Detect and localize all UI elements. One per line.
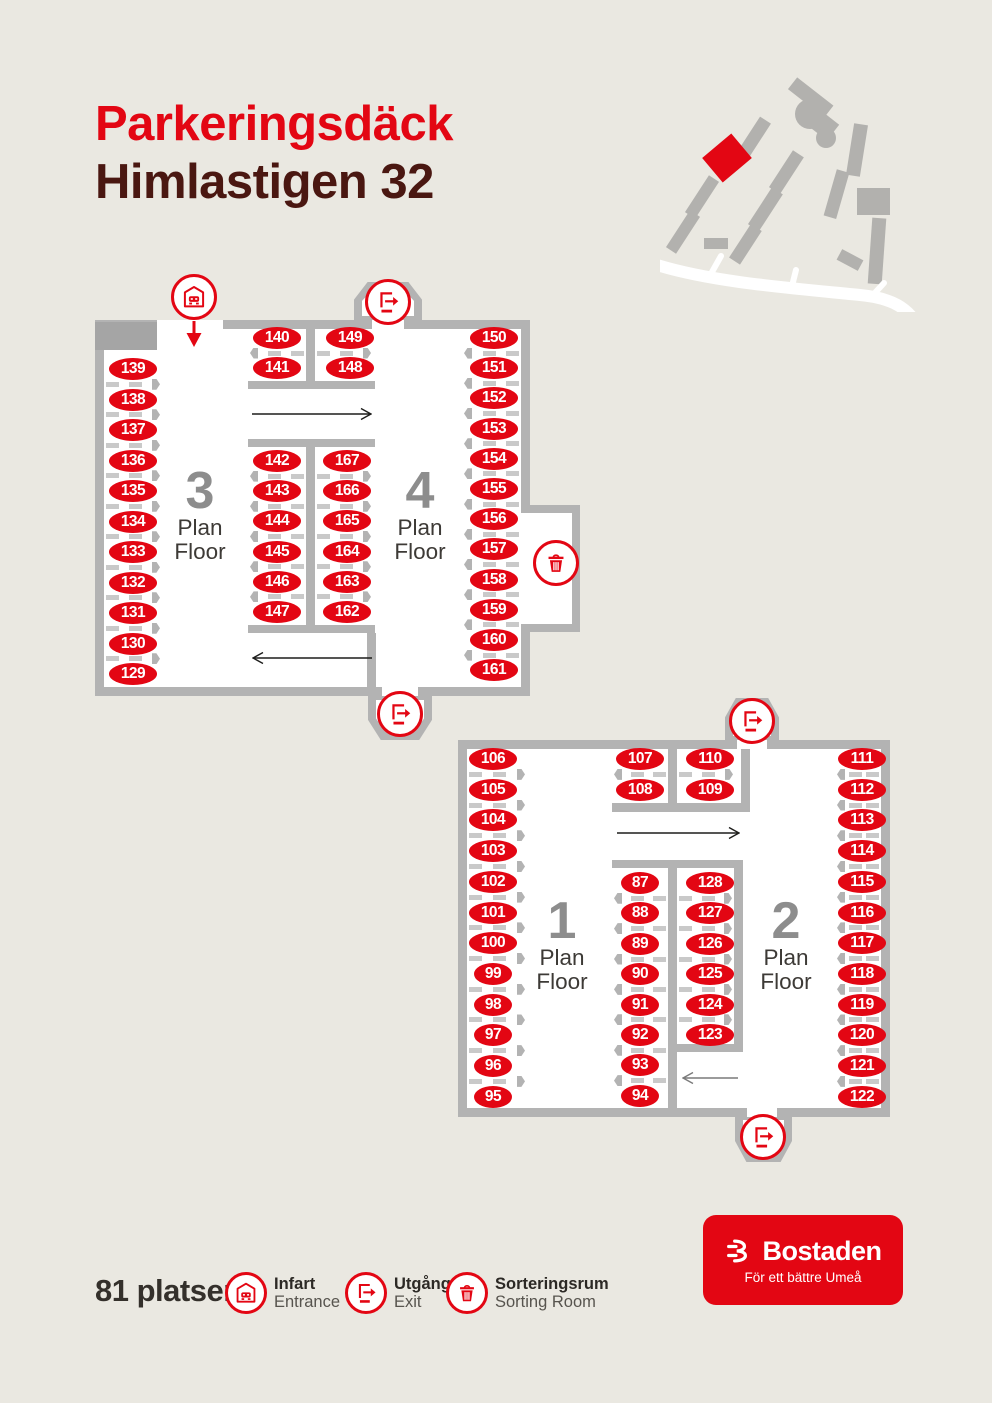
divider-dash [702,772,715,777]
divider-dash [866,1079,879,1084]
space-divider [837,861,879,872]
space-divider [464,650,519,661]
divider-knob [517,830,525,841]
parking-spot-124: 124 [686,994,734,1016]
floor-number: 2 [738,896,834,946]
divider-dash [849,772,862,777]
divider-knob [837,953,845,964]
divider-dash [653,896,666,901]
divider-dash [849,895,862,900]
parking-spot-145: 145 [253,541,301,563]
divider-dash [317,564,330,569]
exit-icon [365,279,411,325]
divider-knob [837,984,845,995]
divider-dash [340,594,353,599]
legend-item-sorting: Sorteringsrum Sorting Room [446,1272,609,1314]
divider-knob [614,893,622,904]
divider-knob [724,923,732,934]
parking-spot-111: 111 [838,748,886,770]
divider-dash [849,1017,862,1022]
divider-dash [106,382,119,387]
parking-spot-121: 121 [838,1055,886,1077]
divider-dash [483,592,496,597]
space-divider [614,893,666,904]
divider-dash [849,987,862,992]
space-divider [317,501,371,512]
space-divider [317,348,371,359]
divider-dash [129,626,142,631]
space-divider [106,379,160,390]
space-divider [106,623,160,634]
bostaden-logo-name: Bostaden [762,1236,881,1267]
parking-spot-109: 109 [686,779,734,801]
parking-spot-110: 110 [686,748,734,770]
divider-dash [631,1078,644,1083]
space-divider [250,471,304,482]
divider-dash [679,896,692,901]
parking-spot-163: 163 [323,571,371,593]
parking-spot-91: 91 [621,994,659,1016]
divider-dash [849,864,862,869]
parking-spot-153: 153 [470,418,518,440]
space-divider [679,923,732,934]
divider-dash [106,504,119,509]
wall [612,803,750,812]
divider-knob [724,893,732,904]
divider-dash [849,1048,862,1053]
divider-dash [493,772,506,777]
parking-spot-101: 101 [469,902,517,924]
floor-number: 3 [152,466,248,516]
space-divider [464,378,519,389]
divider-dash [340,564,353,569]
driving-direction-arrow [682,1071,738,1090]
parking-spot-142: 142 [253,450,301,472]
parking-spot-159: 159 [470,599,518,621]
parking-spot-140: 140 [253,327,301,349]
space-divider [837,953,879,964]
divider-knob [837,922,845,933]
divider-dash [483,653,496,658]
wall-opening [521,513,530,624]
parking-spot-141: 141 [253,357,301,379]
divider-knob [517,800,525,811]
stairwell-block [95,322,157,350]
parking-spot-115: 115 [838,871,886,893]
parking-spot-112: 112 [838,779,886,801]
divider-dash [106,626,119,631]
entrance-icon [171,274,217,320]
parking-spot-147: 147 [253,601,301,623]
divider-dash [493,833,506,838]
divider-knob [614,954,622,965]
wall [741,740,750,806]
divider-knob [363,591,371,602]
divider-dash [493,864,506,869]
parking-spot-116: 116 [838,902,886,924]
space-divider [250,348,304,359]
divider-dash [506,411,519,416]
divider-knob [517,1045,525,1056]
parking-spot-155: 155 [470,478,518,500]
divider-dash [866,925,879,930]
space-divider [837,769,879,780]
space-divider [106,440,160,451]
divider-dash [631,772,644,777]
bostaden-logo-mark [724,1235,756,1267]
divider-knob [152,592,160,603]
divider-dash [493,803,506,808]
divider-dash [702,987,715,992]
floor-word-plan: Plan [738,946,834,970]
space-divider [837,800,879,811]
space-divider [106,409,160,420]
divider-dash [469,1079,482,1084]
divider-knob [464,348,472,359]
entrance-direction-arrow [185,321,203,353]
divider-knob [837,800,845,811]
divider-dash [291,504,304,509]
parking-spot-126: 126 [686,933,734,955]
divider-knob [725,769,733,780]
divider-dash [129,443,142,448]
divider-dash [849,925,862,930]
divider-knob [837,830,845,841]
divider-dash [291,534,304,539]
divider-dash [866,956,879,961]
floor-word-plan: Plan [152,516,248,540]
divider-dash [866,1017,879,1022]
divider-dash [506,441,519,446]
divider-dash [506,471,519,476]
divider-dash [679,926,692,931]
divider-dash [469,833,482,838]
legend-label-infart: Infart [274,1275,340,1293]
divider-dash [340,474,353,479]
parking-spot-98: 98 [474,994,512,1016]
divider-dash [129,534,142,539]
space-divider [614,1045,666,1056]
divider-dash [129,656,142,661]
parking-spot-134: 134 [109,511,157,533]
divider-knob [614,1014,622,1025]
divider-knob [464,408,472,419]
divider-dash [653,957,666,962]
legend-item-entrance: Infart Entrance [225,1272,340,1314]
space-divider [250,531,304,542]
floor-label-3: 3PlanFloor [152,466,248,564]
space-divider [469,1076,525,1087]
divider-dash [129,565,142,570]
space-divider [464,468,519,479]
space-divider [464,348,519,359]
divider-dash [506,532,519,537]
divider-dash [506,622,519,627]
divider-dash [106,443,119,448]
divider-dash [483,411,496,416]
divider-dash [340,351,353,356]
divider-knob [724,954,732,965]
space-divider [614,1075,666,1086]
divider-dash [849,1079,862,1084]
space-divider [464,529,519,540]
divider-dash [469,925,482,930]
divider-dash [317,351,330,356]
wall [95,320,104,696]
parking-spot-136: 136 [109,450,157,472]
divider-knob [614,984,622,995]
floor-word-floor: Floor [372,540,468,564]
divider-knob [837,892,845,903]
parking-spot-148: 148 [326,357,374,379]
divider-dash [268,504,281,509]
divider-dash [702,1017,715,1022]
parking-spot-158: 158 [470,569,518,591]
parking-spot-96: 96 [474,1055,512,1077]
legend-label-sorting-room: Sorting Room [495,1293,609,1311]
divider-knob [614,1075,622,1086]
parking-spot-114: 114 [838,840,886,862]
parking-spot-105: 105 [469,779,517,801]
divider-knob [363,561,371,572]
site-map [660,72,980,312]
divider-dash [679,772,692,777]
divider-knob [250,501,258,512]
parking-spot-107: 107 [616,748,664,770]
divider-knob [152,409,160,420]
divider-knob [152,440,160,451]
space-divider [837,1045,879,1056]
divider-dash [506,381,519,386]
parking-spot-106: 106 [469,748,517,770]
legend-label-exit: Exit [394,1293,451,1311]
space-divider [679,893,732,904]
space-divider [469,830,525,841]
divider-knob [464,650,472,661]
divider-dash [679,1017,692,1022]
divider-dash [317,504,330,509]
sorting-room-icon [446,1272,488,1314]
space-divider [250,501,304,512]
parking-spot-139: 139 [109,358,157,380]
wall [248,625,375,633]
divider-dash [702,957,715,962]
divider-dash [291,351,304,356]
divider-dash [268,534,281,539]
space-divider [464,499,519,510]
space-divider [317,531,371,542]
divider-knob [614,923,622,934]
parking-spot-99: 99 [474,963,512,985]
space-divider [614,984,666,995]
space-divider [469,800,525,811]
parking-spot-103: 103 [469,840,517,862]
parking-spot-132: 132 [109,572,157,594]
divider-dash [493,956,506,961]
parking-spot-137: 137 [109,419,157,441]
divider-dash [702,896,715,901]
divider-dash [679,957,692,962]
divider-dash [483,502,496,507]
space-divider [317,471,371,482]
divider-dash [483,532,496,537]
floor-label-2: 2PlanFloor [738,896,834,994]
space-divider [614,954,666,965]
divider-knob [837,861,845,872]
divider-knob [837,769,845,780]
divider-knob [614,1045,622,1056]
divider-dash [483,441,496,446]
divider-knob [250,348,258,359]
parking-spot-87: 87 [621,872,659,894]
divider-dash [483,381,496,386]
space-divider [679,1014,732,1025]
divider-dash [866,987,879,992]
divider-dash [653,1017,666,1022]
divider-dash [317,474,330,479]
divider-dash [268,474,281,479]
parking-spot-150: 150 [470,327,518,349]
divider-dash [340,534,353,539]
divider-dash [866,803,879,808]
divider-dash [291,594,304,599]
divider-dash [268,351,281,356]
divider-dash [340,504,353,509]
divider-dash [493,1017,506,1022]
parking-spot-108: 108 [616,779,664,801]
divider-dash [129,595,142,600]
parking-spot-95: 95 [474,1086,512,1108]
divider-dash [129,412,142,417]
divider-knob [250,471,258,482]
divider-knob [724,984,732,995]
divider-knob [517,769,525,780]
divider-dash [106,534,119,539]
divider-knob [724,1014,732,1025]
divider-knob [250,531,258,542]
sorting-icon [533,540,579,586]
floor-label-4: 4PlanFloor [372,466,468,564]
divider-dash [493,895,506,900]
floor-word-plan: Plan [372,516,468,540]
space-divider [106,653,160,664]
divider-knob [363,348,371,359]
divider-dash [631,1048,644,1053]
space-divider [464,619,519,630]
divider-dash [653,1078,666,1083]
divider-dash [506,592,519,597]
space-divider [837,984,879,995]
wall [458,740,467,1117]
divider-dash [493,987,506,992]
driving-direction-arrow [617,826,740,845]
divider-knob [837,1045,845,1056]
floor-number: 1 [514,896,610,946]
divider-dash [469,864,482,869]
space-divider [837,830,879,841]
parking-spot-122: 122 [838,1086,886,1108]
divider-dash [493,1048,506,1053]
parking-spot-131: 131 [109,602,157,624]
space-divider [469,1014,525,1025]
space-divider [464,559,519,570]
wall [458,1108,890,1117]
parking-spot-94: 94 [621,1085,659,1107]
space-divider [464,438,519,449]
divider-dash [631,1017,644,1022]
parking-spot-160: 160 [470,629,518,651]
legend-label-entrance: Entrance [274,1293,340,1311]
parking-spot-123: 123 [686,1024,734,1046]
bostaden-logo-tagline: För ett bättre Umeå [744,1270,861,1285]
space-divider [614,923,666,934]
space-divider [469,769,525,780]
parking-spot-154: 154 [470,448,518,470]
divider-dash [106,565,119,570]
divider-knob [464,619,472,630]
divider-dash [469,1017,482,1022]
floor-label-1: 1PlanFloor [514,896,610,994]
parking-spot-92: 92 [621,1024,659,1046]
divider-knob [464,378,472,389]
divider-dash [866,772,879,777]
parking-spot-167: 167 [323,450,371,472]
wall [612,860,743,868]
parking-spot-133: 133 [109,541,157,563]
divider-dash [483,562,496,567]
divider-dash [866,1048,879,1053]
parking-spot-129: 129 [109,663,157,685]
floor-word-floor: Floor [514,970,610,994]
total-spaces-label: 81 platser [95,1273,235,1309]
divider-dash [506,502,519,507]
space-divider [679,984,732,995]
wall [306,439,315,633]
legend-label-sorteringsrum: Sorteringsrum [495,1275,609,1293]
space-divider [469,1045,525,1056]
divider-dash [866,864,879,869]
parking-spot-138: 138 [109,389,157,411]
divider-dash [317,594,330,599]
divider-knob [517,1076,525,1087]
divider-dash [106,473,119,478]
space-divider [837,922,879,933]
divider-dash [469,956,482,961]
divider-dash [866,895,879,900]
divider-dash [653,926,666,931]
divider-knob [363,531,371,542]
divider-knob [517,1014,525,1025]
space-divider [837,892,879,903]
space-divider [250,561,304,572]
divider-dash [129,504,142,509]
exit-icon [377,691,423,737]
exit-icon [345,1272,387,1314]
divider-dash [679,987,692,992]
divider-dash [483,622,496,627]
space-divider [679,769,733,780]
divider-dash [129,382,142,387]
wall [306,320,315,388]
space-divider [317,591,371,602]
wall [668,868,677,1108]
space-divider [250,591,304,602]
divider-knob [837,1014,845,1025]
divider-dash [653,772,666,777]
divider-dash [653,1048,666,1053]
exit-icon [729,698,775,744]
space-divider [837,1076,879,1087]
